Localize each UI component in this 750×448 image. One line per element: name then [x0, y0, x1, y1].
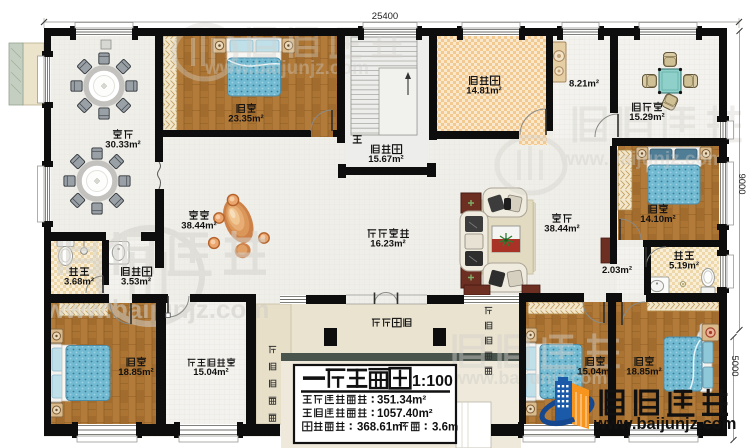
svg-text:1:100: 1:100: [412, 373, 453, 390]
svg-text:www.baijunjz.com: www.baijunjz.com: [559, 149, 724, 170]
svg-text:30.33m²: 30.33m²: [105, 140, 140, 151]
svg-text:23.35m²: 23.35m²: [228, 114, 263, 125]
svg-text:2.03m²: 2.03m²: [602, 265, 632, 276]
svg-text:www.baijunjz.com: www.baijunjz.com: [593, 415, 736, 433]
svg-text:38.44m²: 38.44m²: [544, 224, 579, 235]
svg-text:15.29m²: 15.29m²: [629, 112, 664, 123]
svg-text:38.44m²: 38.44m²: [181, 221, 216, 232]
svg-text:5000: 5000: [729, 355, 740, 376]
svg-text:368.61m²: 368.61m²: [357, 422, 406, 434]
svg-text:3.53m²: 3.53m²: [121, 277, 151, 288]
svg-text:5.19m²: 5.19m²: [669, 261, 699, 272]
svg-text:1057.40m²: 1057.40m²: [377, 408, 433, 420]
svg-text:8.21m²: 8.21m²: [569, 79, 599, 90]
svg-text:18.85m²: 18.85m²: [626, 367, 661, 378]
svg-text:14.10m²: 14.10m²: [640, 214, 675, 225]
svg-text:25400: 25400: [372, 11, 398, 22]
svg-text:16.23m²: 16.23m²: [370, 239, 405, 250]
svg-text:3.6m: 3.6m: [432, 422, 458, 434]
svg-text:15.67m²: 15.67m²: [368, 154, 403, 165]
svg-text:9000: 9000: [736, 173, 747, 194]
svg-text:15.04m²: 15.04m²: [577, 367, 612, 378]
svg-text:15.04m²: 15.04m²: [193, 367, 228, 378]
svg-text:351.34m²: 351.34m²: [377, 395, 426, 407]
svg-text:18.85m²: 18.85m²: [118, 367, 153, 378]
svg-text:14.81m²: 14.81m²: [466, 86, 501, 97]
svg-text:3.68m²: 3.68m²: [64, 277, 94, 288]
